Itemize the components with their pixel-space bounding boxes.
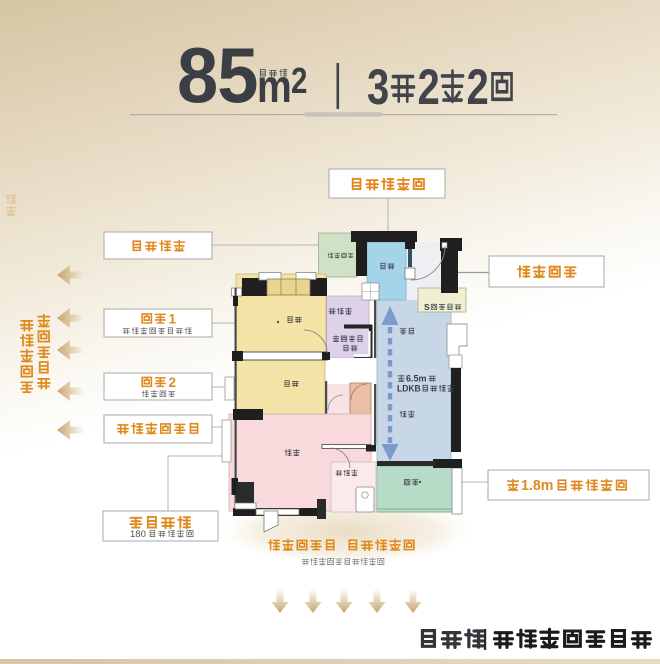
svg-text:m: m [257,61,292,113]
svg-text:2: 2 [418,59,440,115]
svg-text:85: 85 [177,32,258,119]
svg-text:180: 180 [130,529,146,540]
svg-text:LDKB: LDKB [397,383,421,394]
svg-text:6.5m: 6.5m [406,373,427,383]
svg-text:1.8m: 1.8m [521,478,553,494]
svg-text:3: 3 [367,59,389,115]
svg-text:S: S [424,302,430,312]
svg-text:1: 1 [169,312,177,327]
svg-text:2: 2 [291,60,307,100]
svg-text:2: 2 [467,59,489,115]
svg-text:2: 2 [169,375,177,390]
